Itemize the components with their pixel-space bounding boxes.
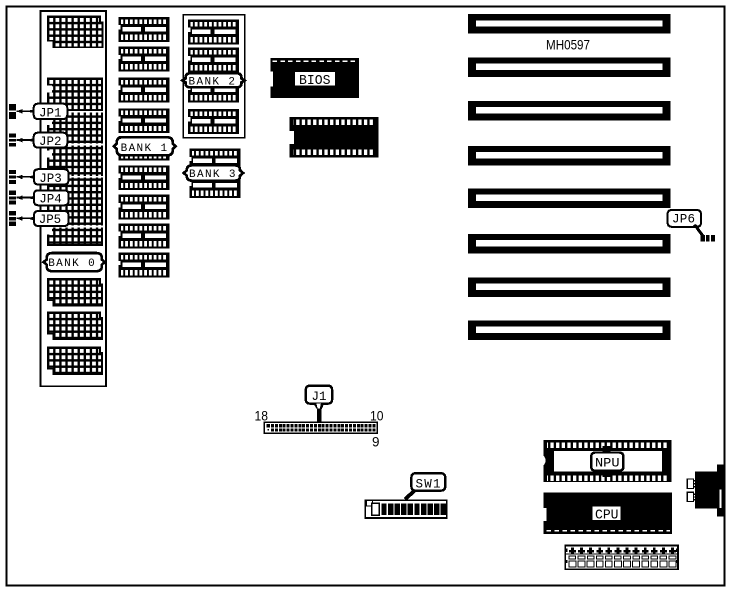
svg-text:JP2: JP2 bbox=[39, 135, 62, 149]
svg-text:NPU: NPU bbox=[595, 456, 620, 471]
svg-text:MH0597: MH0597 bbox=[546, 37, 590, 53]
svg-text:JP4: JP4 bbox=[39, 193, 62, 207]
svg-text:J1: J1 bbox=[312, 390, 327, 404]
svg-text:BIOS: BIOS bbox=[299, 74, 331, 89]
svg-text:10: 10 bbox=[370, 407, 384, 423]
svg-text:JP6: JP6 bbox=[672, 213, 695, 227]
svg-text:JP1: JP1 bbox=[39, 106, 62, 120]
svg-text:9: 9 bbox=[372, 433, 380, 449]
svg-text:BANK 1: BANK 1 bbox=[121, 143, 168, 155]
svg-text:SW1: SW1 bbox=[416, 478, 441, 492]
svg-text:JP5: JP5 bbox=[39, 213, 62, 227]
svg-text:18: 18 bbox=[255, 407, 269, 423]
svg-text:JP3: JP3 bbox=[39, 172, 62, 186]
svg-text:CPU: CPU bbox=[595, 507, 619, 523]
